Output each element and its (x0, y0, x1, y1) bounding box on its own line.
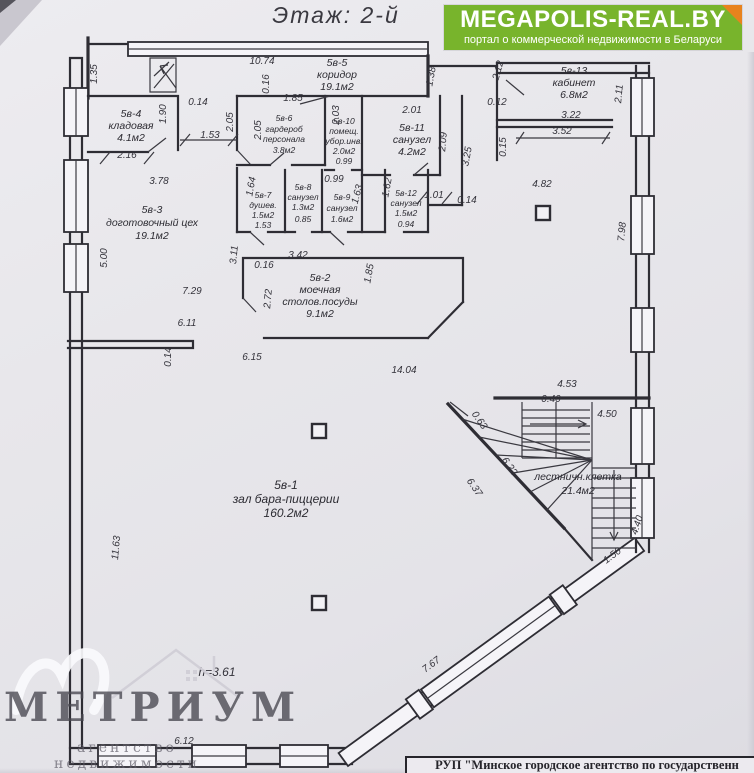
dimension-label: 2.09 (437, 131, 450, 153)
room-dim: 0.99 (336, 156, 353, 166)
room-name: моечная (300, 284, 341, 296)
dimension-label: 1.85 (283, 93, 303, 104)
room-name: персонала (263, 134, 305, 144)
footer-agency-bar: РУП "Минское городское агентство по госу… (405, 756, 754, 773)
dimension-labels: 1.35 10.74 0.16 1.85 1.38 2.12 2.11 0.12… (89, 56, 646, 747)
dimension-label: 1.90 (158, 104, 169, 124)
room-area: 19.1м2 (320, 81, 354, 93)
dimension-label: 3.78 (149, 176, 169, 187)
dimension-label: 3.11 (228, 245, 241, 265)
room-name: душев. (249, 200, 276, 210)
room-name: кладовая (108, 120, 153, 132)
dimension-label: 2.12 (490, 59, 506, 82)
dimension-label: 4.50 (597, 409, 617, 420)
room-area: 4.1м2 (117, 132, 145, 144)
room-name: убор.инв. (324, 136, 362, 146)
room-area: 160.2м2 (264, 506, 309, 520)
dimension-label: 2.16 (116, 150, 137, 161)
room-id: 5в-2 (310, 272, 331, 284)
floor-plan-drawing: 1.35 10.74 0.16 1.85 1.38 2.12 2.11 0.12… (0, 0, 754, 773)
dimension-label: 6.22 (499, 455, 519, 478)
floor-plan-photo: Этаж: 2-й MEGAPOLIS-REAL.BY портал о ком… (0, 0, 754, 773)
room-name: санузел (288, 192, 319, 202)
dimension-label: 3.25 (460, 146, 474, 168)
dimension-label: 7.67 (420, 654, 443, 675)
structural-columns (312, 206, 550, 610)
dimension-label: 1.35 (89, 64, 100, 84)
dimension-label: 1.53 (200, 130, 220, 141)
dimension-label: 2.01 (401, 105, 421, 116)
room-id: 5в-6 (276, 113, 293, 123)
dimension-label: 2.72 (262, 288, 275, 310)
dimension-label: 3.42 (288, 250, 308, 261)
dimension-label: 4.53 (557, 379, 577, 390)
dimension-label: 6.15 (242, 352, 262, 363)
dimension-label: 7.29 (182, 286, 202, 297)
dimension-label: 6.37 (464, 476, 484, 499)
dimension-label: 6.11 (178, 318, 197, 329)
room-area: 1.5м2 (252, 210, 275, 220)
room-name: лестничн.клетка (533, 471, 622, 483)
dimension-label: 1.63 (350, 183, 366, 205)
room-id: 5в-13 (561, 65, 588, 77)
room-dim: 0.94 (398, 219, 415, 229)
dimension-label: 0.14 (188, 97, 208, 108)
room-name: помещ. (329, 126, 359, 136)
room-area: 1.6м2 (331, 214, 354, 224)
dimension-label: 0.40 (541, 394, 561, 405)
room-dim: 1.53 (255, 220, 272, 230)
dimension-label: 0.14 (457, 195, 477, 206)
dimension-label: 2.05 (225, 112, 236, 133)
ceiling-height-note: h=3.61 (198, 665, 235, 679)
footer-agency-text: РУП "Минское городское агентство по госу… (435, 758, 739, 772)
room-area: 21.4м2 (560, 485, 595, 497)
room-name: коридор (317, 69, 357, 81)
dimension-label: 10.74 (249, 56, 274, 67)
room-area: 4.2м2 (398, 146, 426, 158)
dimension-label: 14.04 (391, 365, 416, 376)
room-area: 6.8м2 (560, 89, 588, 101)
dimension-label: 0.16 (261, 74, 272, 94)
room-area: 1.3м2 (292, 202, 315, 212)
dimension-label: 1.38 (424, 66, 438, 88)
dimension-label: 0.12 (487, 97, 507, 108)
room-area: 1.5м2 (395, 208, 418, 218)
exterior-walls (64, 38, 654, 769)
room-id: 5в-12 (395, 188, 417, 198)
dimension-label: 1.62 (380, 177, 394, 199)
room-area: 9.1м2 (306, 308, 334, 320)
dimension-label: 6.12 (174, 736, 194, 747)
dimension-label: 3.22 (561, 110, 581, 121)
dimension-label: 0.15 (498, 137, 509, 157)
dimension-label: 1.01 (424, 190, 443, 201)
room-area: 2.0м2 (332, 146, 356, 156)
room-id: 5в-9 (334, 192, 351, 202)
dimension-label: 4.82 (532, 179, 552, 190)
room-name: доготовочный цех (106, 217, 199, 229)
dimension-label: 7.98 (616, 221, 629, 242)
room-id: 5в-11 (399, 122, 425, 134)
room-id: 5в-5 (327, 57, 348, 69)
room-name: кабинет (553, 77, 596, 89)
entry-arrow-icon (150, 58, 176, 92)
room-id: 5в-10 (333, 116, 355, 126)
dimension-label: 1.85 (362, 263, 376, 285)
dimension-label: 5.00 (99, 248, 110, 268)
room-id: 5в-1 (274, 478, 298, 492)
room-name: столов.посуды (282, 296, 357, 308)
dimension-label: 0.14 (163, 347, 174, 367)
room-id: 5в-3 (142, 204, 163, 216)
room-id: 5в-4 (121, 108, 142, 120)
room-name: санузел (393, 134, 431, 146)
room-area: 3.8м2 (273, 145, 296, 155)
dimension-label: 11.63 (110, 535, 123, 561)
room-name: зал бара-пиццерии (232, 492, 340, 506)
room-area: 19.1м2 (135, 230, 169, 242)
dimension-label: 0.16 (254, 260, 274, 271)
dimension-label: 2.11 (613, 84, 626, 105)
room-dim: 0.85 (295, 214, 312, 224)
room-name: санузел (327, 203, 358, 213)
dimension-label: 0.99 (324, 174, 344, 185)
room-name: гардероб (265, 124, 303, 134)
room-id: 5в-7 (255, 190, 272, 200)
room-name: санузел (391, 198, 422, 208)
dimension-label: 3.52 (552, 126, 572, 137)
room-id: 5в-8 (295, 182, 312, 192)
